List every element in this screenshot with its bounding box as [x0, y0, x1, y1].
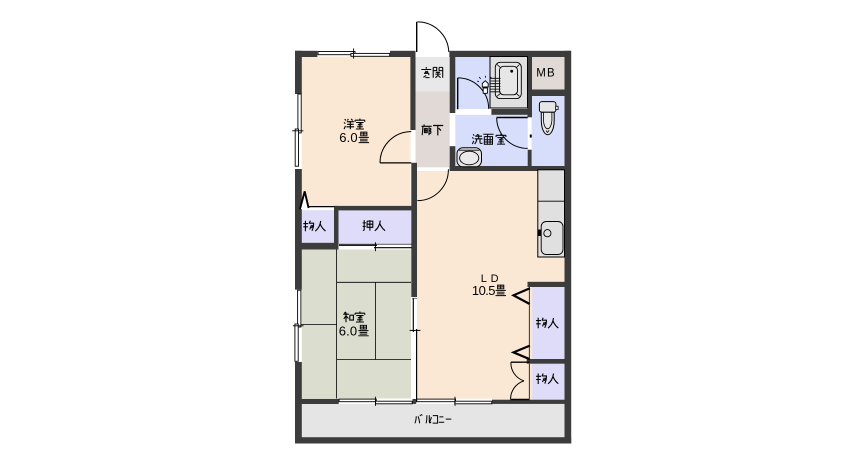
svg-text:10.5: 10.5 [472, 283, 495, 298]
svg-text:6.0: 6.0 [339, 130, 358, 145]
svg-text:6.0: 6.0 [339, 324, 358, 339]
svg-text:MB: MB [536, 68, 556, 80]
